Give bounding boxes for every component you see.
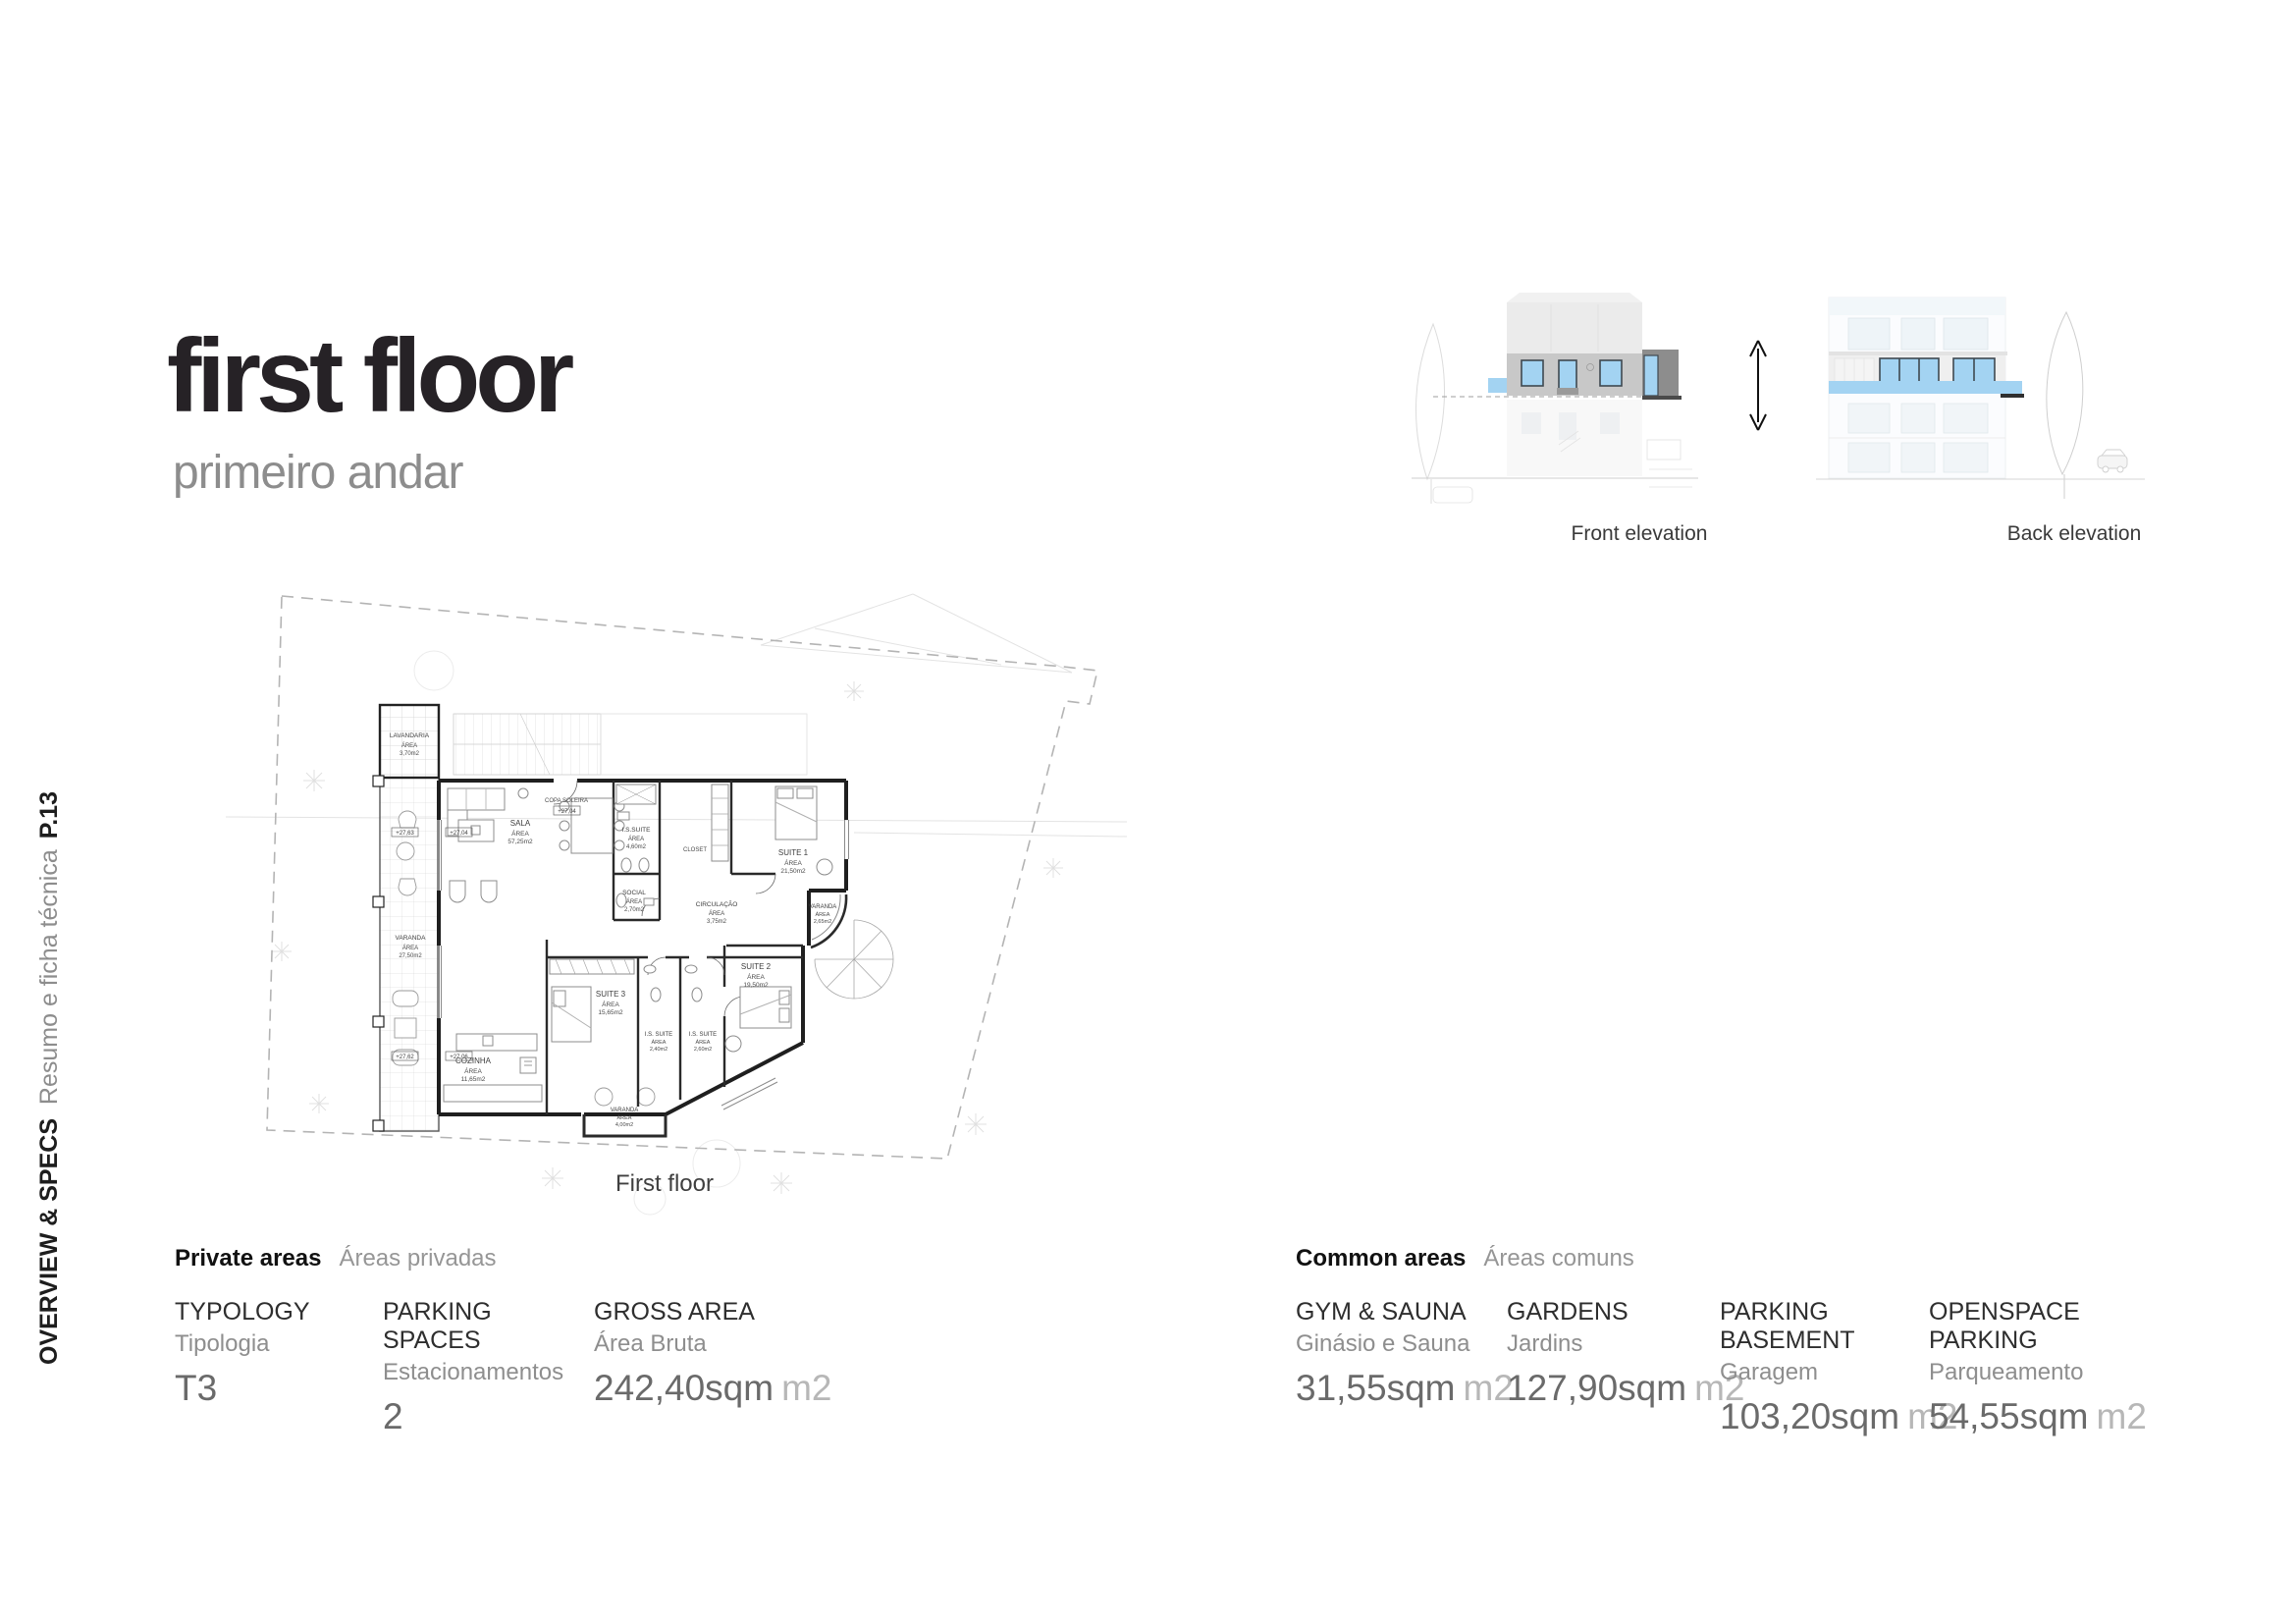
front-tall-window [1644,355,1658,396]
site-context [226,594,1127,1215]
svg-text:+27,04: +27,04 [558,809,576,815]
room-label-varanda-curve: VARANDA ÁREA 2,65m2 [809,904,837,925]
spec-value: T3 [175,1368,217,1408]
spec-gym-sauna: GYM & SAUNA Ginásio e Sauna 31,55sqmm2 [1296,1298,1507,1437]
spec-parking-spaces: PARKING SPACES Estacionamentos 2 [383,1298,594,1437]
back-car [2098,450,2127,472]
spec-openspace-parking: OPENSPACE PARKING Parqueamento 54,55sqmm… [1929,1298,2160,1437]
svg-text:+27,06: +27,06 [450,1055,468,1060]
svg-text:SALA: SALA [510,819,531,828]
page-number: P.13 [35,791,64,839]
spec-typology: TYPOLOGY Tipologia T3 [175,1298,383,1437]
svg-text:SUITE 3: SUITE 3 [596,990,626,999]
sidebar-section-title: OVERVIEW & SPECS [35,1118,63,1365]
back-balcony-band [1829,381,2022,394]
private-areas-title: Private areas [175,1245,321,1272]
upper-deck [454,714,807,775]
svg-text:2,60m2: 2,60m2 [694,1047,712,1053]
front-roof [1507,293,1642,302]
svg-text:SUITE 2: SUITE 2 [741,962,772,971]
lamp [518,788,528,798]
spec-sublabel: Área Bruta [594,1330,869,1358]
copa-label: COPA SOLEIRA [545,798,588,804]
private-areas-subtitle: Áreas privadas [339,1245,496,1272]
spec-sublabel: Tipologia [175,1330,383,1358]
spec-sublabel: Jardins [1507,1330,1720,1358]
svg-text:ÁREA: ÁREA [464,1066,482,1075]
svg-text:27,50m2: 27,50m2 [399,953,422,959]
svg-text:11,65m2: 11,65m2 [461,1076,486,1083]
front-ground-floor [1507,400,1642,476]
svg-text:3,75m2: 3,75m2 [707,919,727,925]
chair-suite1 [817,859,832,875]
spec-sublabel: Garagem [1720,1359,1929,1386]
spec-sublabel: Ginásio e Sauna [1296,1330,1507,1358]
armchairs [450,881,497,902]
spec-label: GROSS AREA [594,1298,869,1326]
wardrobe-closet [712,785,728,861]
spec-label: GARDENS [1507,1298,1720,1326]
spec-sublabel: Parqueamento [1929,1359,2160,1386]
page-title: first floor [167,324,569,428]
sidebar-section: OVERVIEW & SPECS Resumo e ficha técnica [35,933,64,1365]
bed-suite3 [552,987,591,1042]
svg-text:2,65m2: 2,65m2 [814,919,831,925]
spec-value: 127,90sqm [1507,1368,1686,1408]
svg-text:2,70m2: 2,70m2 [624,907,645,913]
spec-unit: m2 [2097,1396,2147,1436]
svg-text:4,60m2: 4,60m2 [626,844,647,850]
spec-gardens: GARDENS Jardins 127,90sqmm2 [1507,1298,1720,1437]
spec-value: 31,55sqm [1296,1368,1456,1408]
svg-text:ÁREA: ÁREA [709,910,724,917]
spec-label: OPENSPACE PARKING [1929,1298,2160,1355]
svg-text:CIRCULAÇÃO: CIRCULAÇÃO [696,899,738,908]
balcony-strip [373,705,439,1131]
svg-text:I.S.SUITE: I.S.SUITE [622,827,652,834]
page-subtitle: primeiro andar [173,450,462,497]
spec-label: GYM & SAUNA [1296,1298,1507,1326]
room-label-social: SOCIAL ÁREA 2,70m2 [622,890,646,913]
bed-suite1 [775,786,817,839]
spec-value: 2 [383,1396,403,1436]
svg-text:ÁREA: ÁREA [784,858,802,867]
room-label-varanda-bottom: VARANDA ÁREA 4,00m2 [611,1108,639,1128]
svg-text:ÁREA: ÁREA [652,1039,667,1046]
plan-caption: First floor [615,1170,714,1197]
back-elevation-label: Back elevation [1991,522,2158,546]
svg-text:I.S. SUITE: I.S. SUITE [689,1032,717,1038]
room-label-circulacao: CIRCULAÇÃO ÁREA 3,75m2 [696,899,738,925]
back-top-band [1829,298,2005,315]
room-label-suite3: SUITE 3 ÁREA 15,65m2 [596,990,626,1016]
svg-text:I.S. SUITE: I.S. SUITE [645,1032,672,1038]
back-top-windows [1848,318,1988,350]
back-slab [1829,352,2007,355]
bed-suite2 [740,987,791,1028]
svg-text:3,70m2: 3,70m2 [400,751,420,757]
svg-text:ÁREA: ÁREA [626,898,642,905]
room-label-is-suite-top: I.S.SUITE ÁREA 4,60m2 [622,827,652,850]
svg-text:ÁREA: ÁREA [602,1000,619,1008]
svg-text:ÁREA: ÁREA [816,911,830,918]
room-label-sala: SALA ÁREA 57,25m2 [507,819,533,845]
svg-text:+27,62: +27,62 [396,1055,414,1060]
double-arrow-icon [1742,339,1774,432]
dining-table [560,798,624,853]
spec-sublabel: Estacionamentos [383,1359,594,1386]
private-areas-group: Private areasÁreas privadas TYPOLOGY Tip… [175,1245,872,1437]
kitchen [444,1034,542,1102]
room-label-is-suite-2: I.S. SUITE ÁREA 2,60m2 [689,1032,717,1053]
front-tree [1416,324,1445,504]
svg-text:2,40m2: 2,40m2 [650,1047,667,1053]
svg-text:4,00m2: 4,00m2 [615,1122,633,1128]
spec-unit: m2 [781,1368,831,1408]
chair-suite2 [725,1036,741,1052]
svg-text:57,25m2: 57,25m2 [507,839,533,845]
back-dark-underline [2001,394,2024,398]
svg-text:15,65m2: 15,65m2 [598,1009,623,1016]
room-label-suite2: SUITE 2 ÁREA 19,50m2 [741,962,772,989]
svg-text:ÁREA: ÁREA [747,972,765,981]
spec-gross-area: GROSS AREA Área Bruta 242,40sqmm2 [594,1298,869,1437]
spec-value: 54,55sqm [1929,1396,2089,1436]
common-areas-header: Common areasÁreas comuns [1296,1245,2160,1272]
private-areas-header: Private areasÁreas privadas [175,1245,872,1272]
svg-text:ÁREA: ÁREA [402,945,418,951]
svg-text:ÁREA: ÁREA [617,1114,632,1121]
spec-label: PARKING BASEMENT [1720,1298,1929,1355]
front-balcony-hatch [1557,388,1578,395]
spec-label: TYPOLOGY [175,1298,383,1326]
front-dark-sill [1642,396,1682,400]
front-elevation [1404,263,1728,518]
sidebar-section-subtitle: Resumo e ficha técnica [35,849,63,1105]
svg-text:+27,63: +27,63 [396,831,414,837]
back-elevation [1811,263,2150,518]
svg-text:VARANDA: VARANDA [396,935,427,942]
common-areas-subtitle: Áreas comuns [1483,1245,1633,1272]
floor-plan: LAVANDARIA ÁREA 3,70m2 VARANDA ÁREA 27,5… [226,574,1129,1222]
svg-text:19,50m2: 19,50m2 [743,982,769,989]
spec-value: 242,40sqm [594,1368,774,1408]
svg-text:+27,04: +27,04 [450,831,468,837]
front-upper-floor [1507,302,1642,353]
common-areas-group: Common areasÁreas comuns GYM & SAUNA Gin… [1296,1245,2160,1437]
back-tree [2047,312,2083,499]
room-label-is-suite-1: I.S. SUITE ÁREA 2,40m2 [645,1032,672,1053]
svg-text:VARANDA: VARANDA [611,1108,639,1113]
spec-value: 103,20sqm [1720,1396,1899,1436]
svg-text:ÁREA: ÁREA [511,829,529,838]
svg-text:ÁREA: ÁREA [628,836,644,842]
svg-text:21,50m2: 21,50m2 [780,868,806,875]
spec-parking-basement: PARKING BASEMENT Garagem 103,20sqmm2 [1720,1298,1929,1437]
svg-text:ÁREA: ÁREA [401,742,417,749]
svg-text:SOCIAL: SOCIAL [622,890,646,896]
wardrobe-suite3 [550,959,634,974]
room-label-closet: CLOSET [683,847,707,853]
front-elevation-label: Front elevation [1556,522,1723,546]
front-left-stub [1488,378,1507,393]
spec-label: PARKING SPACES [383,1298,594,1355]
svg-text:LAVANDARIA: LAVANDARIA [390,732,430,739]
spiral-stair [815,920,893,999]
svg-text:ÁREA: ÁREA [696,1039,711,1046]
room-label-suite1: SUITE 1 ÁREA 21,50m2 [778,848,809,875]
common-areas-title: Common areas [1296,1245,1466,1272]
svg-text:VARANDA: VARANDA [809,904,837,910]
svg-text:SUITE 1: SUITE 1 [778,848,809,857]
